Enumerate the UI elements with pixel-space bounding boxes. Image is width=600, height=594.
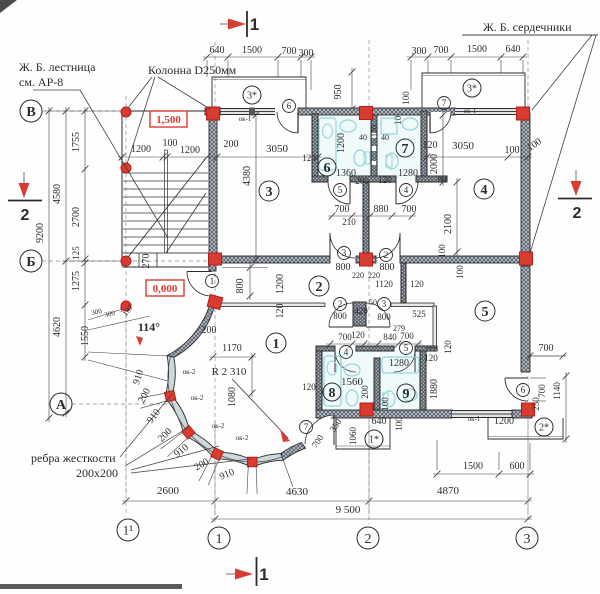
svg-text:1275: 1275 — [71, 271, 82, 291]
svg-text:1140: 1140 — [552, 382, 562, 400]
svg-text:9: 9 — [403, 387, 410, 402]
svg-text:ок-1: ок-1 — [464, 107, 477, 115]
svg-text:1200: 1200 — [336, 133, 347, 153]
svg-text:ок-1: ок-1 — [468, 415, 481, 423]
svg-text:120: 120 — [275, 304, 286, 319]
svg-text:270: 270 — [141, 254, 152, 269]
svg-text:120: 120 — [423, 140, 438, 151]
svg-text:3: 3 — [266, 185, 273, 200]
svg-text:1170: 1170 — [222, 343, 242, 354]
svg-text:1755: 1755 — [71, 132, 82, 152]
svg-text:ок-2: ок-2 — [191, 394, 204, 402]
svg-text:120: 120 — [443, 340, 453, 354]
svg-text:5: 5 — [482, 305, 489, 320]
svg-text:3: 3 — [382, 299, 387, 309]
svg-text:4: 4 — [404, 185, 409, 195]
svg-text:700: 700 — [402, 204, 417, 215]
svg-text:1: 1 — [259, 565, 268, 584]
svg-text:3050: 3050 — [266, 143, 289, 155]
svg-text:840: 840 — [383, 332, 397, 342]
svg-text:Ж. Б. сердечники: Ж. Б. сердечники — [483, 20, 572, 34]
svg-text:700: 700 — [400, 331, 414, 341]
svg-text:5: 5 — [338, 185, 343, 195]
svg-text:1: 1 — [216, 532, 223, 547]
svg-text:4580: 4580 — [52, 184, 63, 204]
svg-text:120: 120 — [370, 125, 379, 137]
svg-text:100: 100 — [455, 265, 465, 279]
svg-text:300: 300 — [299, 48, 314, 59]
svg-text:6: 6 — [287, 101, 292, 111]
svg-text:120: 120 — [302, 153, 316, 163]
svg-text:114°: 114° — [138, 320, 160, 334]
svg-text:1360: 1360 — [336, 168, 356, 179]
svg-text:40: 40 — [381, 133, 389, 142]
svg-text:800: 800 — [336, 262, 351, 273]
svg-text:120: 120 — [424, 353, 438, 363]
svg-text:2: 2 — [21, 207, 30, 224]
svg-text:Ж. Б. лестница: Ж. Б. лестница — [19, 60, 96, 74]
svg-text:ок-2: ок-2 — [212, 422, 225, 430]
svg-text:7: 7 — [442, 98, 447, 108]
svg-text:2000: 2000 — [429, 154, 440, 174]
svg-text:880: 880 — [374, 204, 389, 215]
svg-text:1¹: 1¹ — [123, 523, 134, 538]
svg-text:1080: 1080 — [227, 387, 238, 407]
svg-text:700: 700 — [282, 46, 297, 57]
svg-text:700: 700 — [537, 384, 547, 398]
svg-text:1280: 1280 — [398, 168, 418, 179]
svg-text:1200: 1200 — [494, 416, 514, 427]
svg-text:А: А — [56, 398, 67, 413]
svg-text:9200: 9200 — [35, 223, 46, 243]
svg-text:525: 525 — [412, 309, 426, 319]
svg-text:4870: 4870 — [437, 485, 460, 497]
svg-text:2*: 2* — [539, 423, 549, 434]
svg-text:1200: 1200 — [180, 145, 200, 156]
svg-text:1880: 1880 — [429, 379, 440, 399]
svg-text:80: 80 — [438, 174, 448, 184]
svg-text:Колонна D250мм: Колонна D250мм — [148, 63, 237, 77]
svg-text:см. АР-8: см. АР-8 — [19, 75, 63, 89]
svg-text:2: 2 — [573, 205, 582, 222]
svg-text:200: 200 — [360, 385, 370, 399]
svg-text:1: 1 — [210, 276, 215, 286]
svg-text:800: 800 — [377, 312, 391, 322]
svg-text:2: 2 — [365, 532, 372, 547]
svg-text:100: 100 — [401, 91, 411, 105]
svg-text:1,500: 1,500 — [156, 114, 181, 126]
svg-text:1200: 1200 — [131, 144, 151, 155]
svg-text:1280: 1280 — [389, 358, 409, 369]
svg-text:0,000: 0,000 — [153, 283, 178, 295]
svg-text:3*: 3* — [247, 91, 257, 102]
svg-text:210: 210 — [342, 217, 356, 227]
svg-text:950: 950 — [333, 85, 344, 100]
svg-text:250: 250 — [531, 397, 541, 411]
svg-text:200: 200 — [355, 176, 369, 186]
svg-text:100: 100 — [163, 138, 178, 149]
svg-text:2700: 2700 — [71, 207, 82, 227]
svg-text:2: 2 — [316, 280, 323, 295]
svg-text:120: 120 — [410, 279, 424, 289]
svg-text:1500: 1500 — [242, 45, 262, 56]
svg-text:600: 600 — [510, 461, 525, 472]
svg-text:125: 125 — [71, 246, 81, 260]
svg-text:2600: 2600 — [157, 485, 180, 497]
svg-text:4620: 4620 — [52, 317, 63, 337]
svg-text:3: 3 — [524, 532, 531, 547]
svg-text:1550: 1550 — [80, 326, 91, 346]
svg-text:1500: 1500 — [463, 461, 483, 472]
svg-text:640: 640 — [506, 44, 521, 55]
svg-text:120: 120 — [378, 175, 392, 185]
svg-text:300: 300 — [412, 46, 427, 57]
svg-text:3: 3 — [342, 248, 347, 258]
svg-text:8: 8 — [329, 386, 336, 401]
svg-text:120: 120 — [302, 382, 316, 392]
svg-text:700: 700 — [539, 343, 554, 354]
svg-text:800: 800 — [380, 262, 395, 273]
svg-text:4630: 4630 — [286, 486, 309, 498]
svg-text:3*: 3* — [467, 84, 477, 95]
svg-text:200х200: 200х200 — [76, 466, 118, 480]
svg-text:1500: 1500 — [467, 44, 487, 55]
svg-text:2100: 2100 — [443, 214, 454, 234]
svg-text:1200: 1200 — [275, 274, 286, 294]
svg-text:В: В — [26, 105, 35, 120]
svg-text:220: 220 — [352, 271, 364, 280]
svg-text:1: 1 — [273, 337, 280, 352]
svg-text:4380: 4380 — [242, 166, 253, 186]
svg-text:3050: 3050 — [452, 140, 475, 152]
svg-text:200: 200 — [202, 325, 217, 336]
svg-text:9 500: 9 500 — [336, 504, 361, 516]
svg-text:100: 100 — [505, 145, 520, 156]
svg-text:50: 50 — [369, 298, 377, 307]
svg-text:640: 640 — [210, 45, 225, 56]
svg-text:700: 700 — [434, 45, 449, 56]
svg-text:ок-2: ок-2 — [236, 434, 249, 442]
svg-text:800: 800 — [333, 311, 347, 321]
svg-text:1120: 1120 — [375, 279, 393, 289]
svg-text:ок-1: ок-1 — [239, 115, 252, 123]
svg-text:120: 120 — [351, 330, 365, 340]
svg-text:640: 640 — [372, 416, 387, 427]
svg-text:420: 420 — [354, 306, 368, 316]
svg-text:7: 7 — [402, 142, 409, 157]
svg-text:700: 700 — [335, 204, 350, 215]
svg-text:4: 4 — [344, 347, 349, 357]
svg-text:7: 7 — [304, 422, 309, 432]
svg-text:Б: Б — [26, 255, 35, 270]
svg-text:R 2 310: R 2 310 — [212, 366, 247, 378]
svg-text:1060: 1060 — [348, 427, 358, 446]
svg-text:1*: 1* — [369, 435, 379, 446]
svg-text:100: 100 — [437, 244, 447, 258]
svg-text:6: 6 — [324, 161, 331, 176]
svg-text:5: 5 — [404, 343, 409, 353]
svg-text:4: 4 — [481, 183, 488, 198]
svg-text:6: 6 — [521, 385, 526, 395]
svg-text:ребра жесткости: ребра жесткости — [31, 451, 116, 465]
svg-text:1: 1 — [250, 15, 259, 34]
svg-text:100: 100 — [394, 417, 404, 431]
svg-text:2: 2 — [384, 250, 389, 260]
svg-text:2: 2 — [338, 299, 343, 309]
svg-text:40: 40 — [359, 133, 367, 142]
svg-text:100: 100 — [380, 397, 390, 411]
svg-text:ок-2: ок-2 — [183, 368, 196, 376]
svg-text:200: 200 — [224, 139, 239, 150]
svg-text:700: 700 — [338, 332, 352, 342]
svg-text:800: 800 — [235, 279, 246, 294]
